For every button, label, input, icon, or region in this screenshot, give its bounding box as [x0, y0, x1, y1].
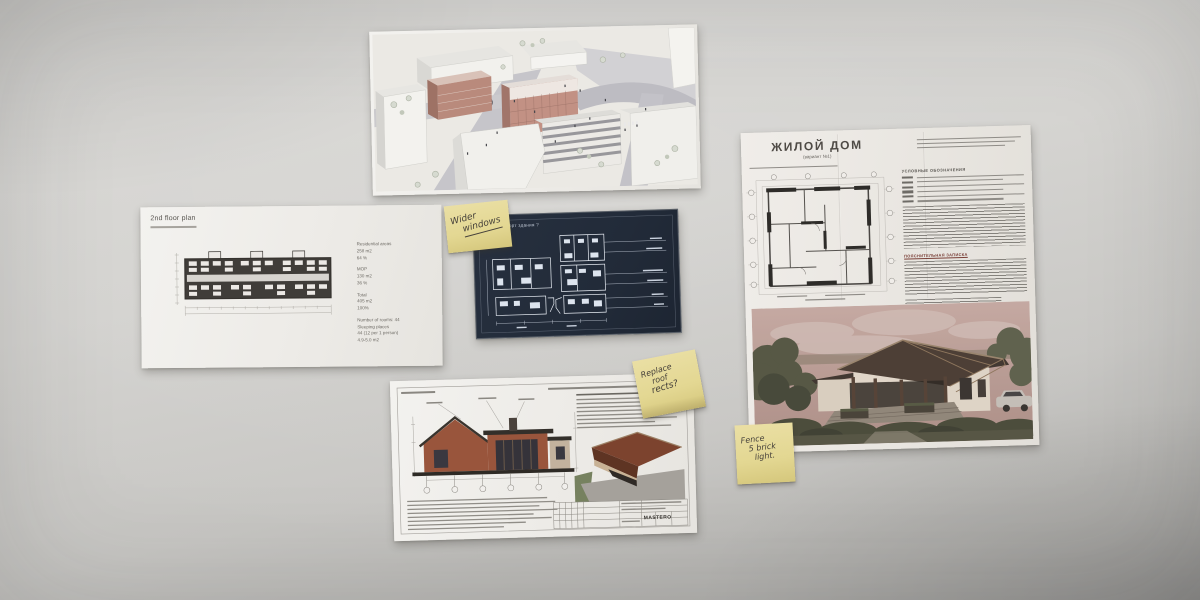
site-render-illustration: [372, 27, 697, 191]
wall: 2nd floor plan Residential areas 258 m2 …: [0, 0, 1200, 600]
project-title: ЖИЛОЙ ДОМ: [769, 138, 865, 155]
stat-line: 4.9-5.0 m2: [357, 337, 432, 344]
spec-text-column: УСЛОВНЫЕ ОБОЗНАЧЕНИЯ ПОЯСНИТЕЛЬНАЯ ЗАПИС…: [902, 165, 1028, 311]
address-block: [917, 136, 1021, 151]
house-photo-render: [752, 301, 1034, 447]
plan-caption-line: [750, 165, 838, 169]
house-plan-drawing: [744, 169, 900, 305]
sticky-note-brick-light: Fence 5 brick light.: [734, 423, 795, 485]
stat-line: 64 %: [357, 254, 432, 261]
notes-heading: ПОЯСНИТЕЛЬНАЯ ЗАПИСКА: [904, 250, 1026, 258]
floor-plan-stats: Residential areas 258 m2 64 % MOP 130 m2…: [357, 241, 433, 349]
stat-line: 100%: [357, 305, 432, 312]
project-sheet: ЖИЛОЙ ДОМ (вариант №1): [741, 125, 1040, 453]
note-line: light.: [754, 451, 777, 463]
floor-plan-title: 2nd floor plan: [150, 215, 195, 222]
paragraph-block: [904, 258, 1027, 295]
paragraph-block: [903, 203, 1026, 248]
handwritten-text: Replace roof rects?: [640, 361, 680, 398]
sticky-note-wider-windows: Wider windows: [444, 200, 513, 253]
floor-plan-sheet: 2nd floor plan Residential areas 258 m2 …: [140, 205, 442, 369]
stat-line: 36 %: [357, 280, 432, 287]
handwritten-text: Wider windows: [449, 205, 502, 240]
legend-heading: УСЛОВНЫЕ ОБОЗНАЧЕНИЯ: [902, 165, 1024, 173]
legend-row: [903, 197, 1025, 203]
stamp-logo: MASTERO: [644, 514, 672, 521]
sticky-note-replace-roof: Replace roof rects?: [632, 349, 706, 418]
handwritten-text: Fence 5 brick light.: [740, 432, 777, 464]
site-render-paper: [369, 24, 701, 195]
